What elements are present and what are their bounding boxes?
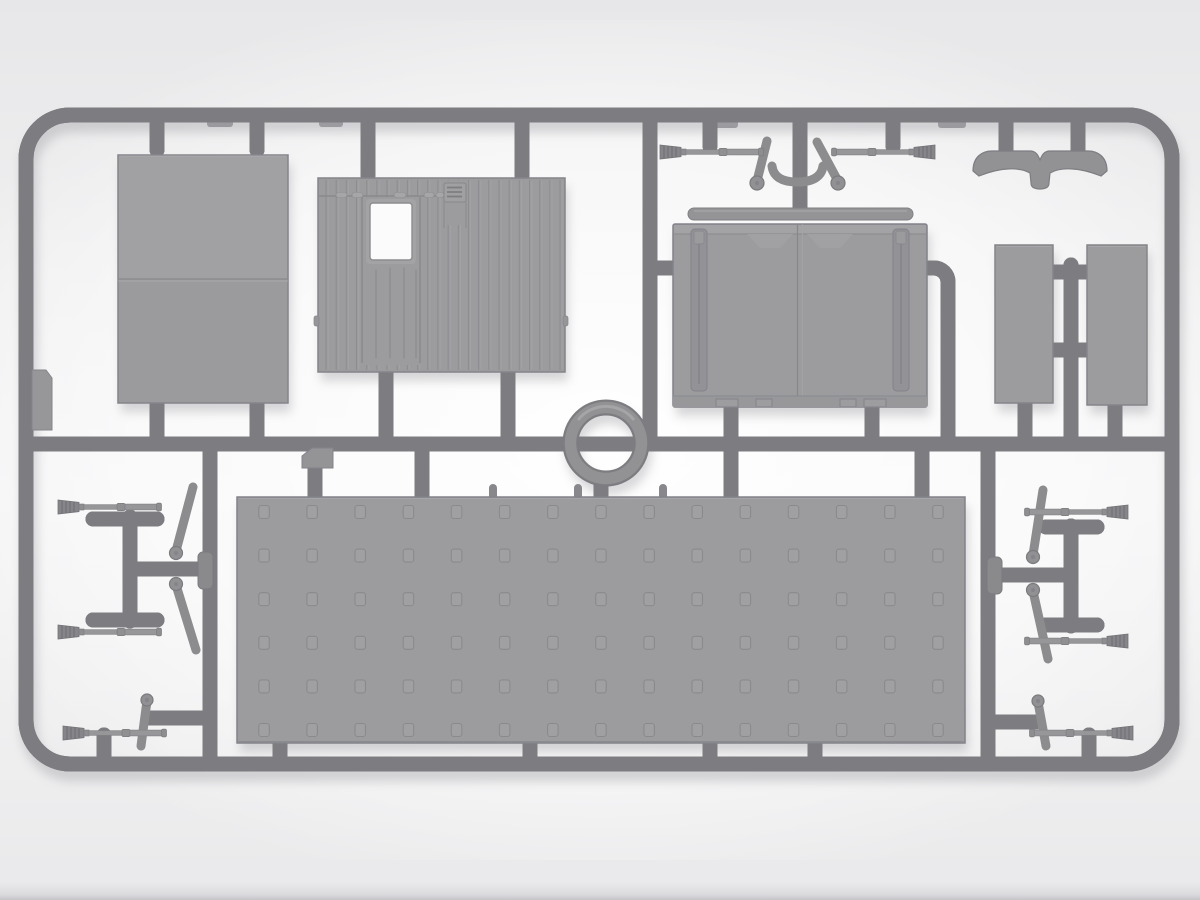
narrow-side-panel-1 — [995, 245, 1053, 403]
tread-floor-panel — [237, 497, 965, 743]
floor-grid-square — [403, 680, 414, 693]
floor-grid-square — [548, 549, 559, 562]
floor-grid-square — [788, 724, 799, 737]
floor-grid-square — [499, 724, 510, 737]
floor-grid-square — [307, 506, 318, 519]
floor-grid-square — [499, 549, 510, 562]
floor-grid-square — [644, 680, 655, 693]
floor-grid-square — [596, 549, 607, 562]
floor-grid-square — [451, 549, 462, 562]
floor-grid-square — [644, 506, 655, 519]
floor-grid-square — [259, 724, 270, 737]
floor-grid-square — [740, 593, 751, 606]
floor-grid-square — [596, 593, 607, 606]
floor-grid-square — [451, 593, 462, 606]
door-bottom-rim — [673, 396, 927, 407]
floor-grid-square — [788, 506, 799, 519]
floor-grid-square — [499, 636, 510, 649]
floor-grid-square — [885, 724, 896, 737]
floor-grid-square — [740, 636, 751, 649]
floor-grid-square — [451, 506, 462, 519]
floor-grid-square — [499, 506, 510, 519]
floor-grid-square — [836, 506, 847, 519]
floor-grid-square — [499, 680, 510, 693]
floor-grid-square — [740, 680, 751, 693]
floor-grid-square — [548, 680, 559, 693]
floor-grid-square — [885, 549, 896, 562]
floor-grid-square — [644, 636, 655, 649]
floor-grid-square — [451, 724, 462, 737]
floor-grid-square — [644, 593, 655, 606]
floor-grid-square — [788, 593, 799, 606]
floor-grid-square — [933, 680, 944, 693]
floor-grid-square — [307, 680, 318, 693]
corrugated-wall-panel — [314, 178, 568, 372]
floor-grid-square — [740, 549, 751, 562]
floor-grid-square — [692, 506, 703, 519]
floor-grid-square — [548, 724, 559, 737]
floor-grid-square — [740, 506, 751, 519]
floor-grid-square — [259, 506, 270, 519]
floor-grid-square — [355, 506, 366, 519]
floor-grid-square — [403, 593, 414, 606]
header-bar — [688, 208, 913, 220]
mounting-tab — [32, 370, 52, 430]
floor-grid-square — [788, 549, 799, 562]
floor-grid-square — [836, 549, 847, 562]
floor-grid-square — [355, 593, 366, 606]
floor-grid-square — [885, 636, 896, 649]
floor-grid-square — [259, 680, 270, 693]
floor-grid-square — [307, 593, 318, 606]
floor-grid-square — [355, 724, 366, 737]
runner-pad — [198, 552, 213, 589]
floor-grid-square — [307, 724, 318, 737]
floor-grid-square — [692, 636, 703, 649]
window-opening — [370, 203, 412, 260]
floor-grid-square — [596, 506, 607, 519]
floor-grid-square — [788, 636, 799, 649]
floor-grid-square — [644, 724, 655, 737]
floor-grid-square — [403, 724, 414, 737]
runner-pad — [987, 557, 1002, 594]
floor-grid-square — [307, 636, 318, 649]
floor-grid-square — [885, 506, 896, 519]
floor-grid-square — [596, 636, 607, 649]
floor-grid-square — [451, 680, 462, 693]
floor-grid-square — [259, 593, 270, 606]
floor-grid-square — [548, 506, 559, 519]
floor-grid-square — [307, 549, 318, 562]
floor-grid-square — [403, 506, 414, 519]
floor-grid-square — [933, 724, 944, 737]
sprue-svg — [0, 0, 1200, 900]
sprue-render — [0, 0, 1200, 900]
floor-grid-square — [933, 506, 944, 519]
floor-grid-square — [836, 680, 847, 693]
floor-grid-square — [836, 636, 847, 649]
floor-grid-square — [933, 636, 944, 649]
floor-grid-square — [885, 593, 896, 606]
floor-grid-square — [403, 549, 414, 562]
floor-grid-square — [548, 636, 559, 649]
large-flat-panel — [118, 155, 288, 403]
floor-grid-square — [692, 724, 703, 737]
floor-grid-square — [836, 593, 847, 606]
floor-grid-square — [259, 636, 270, 649]
narrow-side-panel-2 — [1087, 245, 1147, 405]
table-edge-shadow — [0, 882, 1200, 900]
double-door-panel — [673, 224, 927, 407]
floor-grid-square — [788, 680, 799, 693]
floor-grid-square — [933, 593, 944, 606]
floor-grid-square — [596, 680, 607, 693]
floor-grid-square — [740, 724, 751, 737]
floor-grid-square — [355, 680, 366, 693]
floor-grid-square — [259, 549, 270, 562]
floor-grid-square — [692, 549, 703, 562]
floor-grid-square — [692, 593, 703, 606]
floor-grid-square — [596, 724, 607, 737]
floor-grid-square — [355, 636, 366, 649]
floor-grid-square — [644, 549, 655, 562]
floor-grid-square — [836, 724, 847, 737]
floor-grid-square — [548, 593, 559, 606]
floor-grid-square — [933, 549, 944, 562]
floor-grid-square — [355, 549, 366, 562]
floor-grid-square — [451, 636, 462, 649]
door-top-rim — [674, 225, 926, 234]
floor-grid-square — [499, 593, 510, 606]
floor-grid-square — [692, 680, 703, 693]
floor-grid-square — [403, 636, 414, 649]
floor-grid-square — [885, 680, 896, 693]
